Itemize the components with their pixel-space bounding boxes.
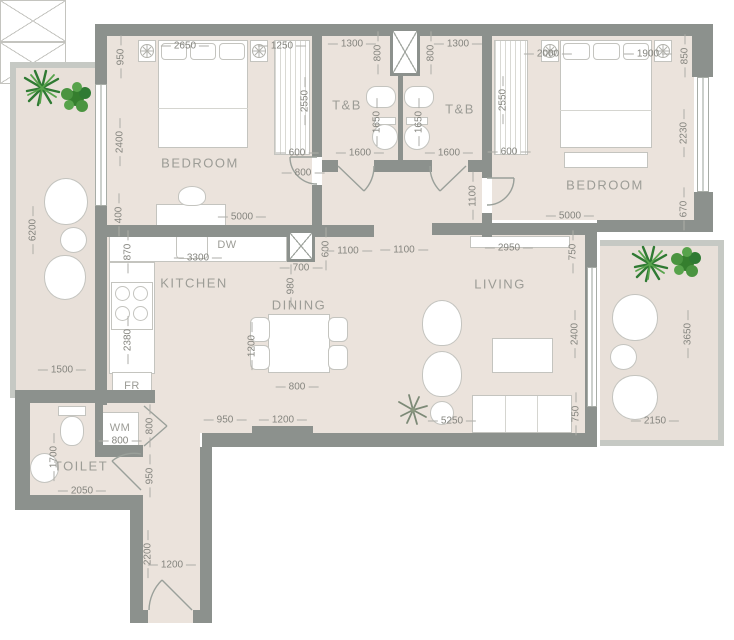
wall-south-notch — [252, 426, 313, 447]
balcony-chair — [612, 294, 658, 341]
dim-label: 1300 — [328, 39, 376, 50]
dim-label: 1700 — [49, 433, 60, 481]
dim-label: 3650 — [683, 310, 694, 358]
pillow — [593, 43, 620, 60]
dim-label: 600 — [488, 147, 531, 158]
railing-left-balcony-west — [10, 62, 16, 398]
burner — [115, 286, 130, 301]
window-bedroom-left — [95, 84, 107, 206]
room-label-kitchen: KITCHEN — [160, 276, 228, 291]
dim-label: 6200 — [28, 206, 39, 254]
dim-label: 670 — [679, 188, 690, 231]
dim-label: 1650 — [414, 98, 425, 146]
dim-label: 1200 — [247, 322, 258, 370]
dim-label: 3300 — [174, 253, 222, 264]
dim-label: 5250 — [428, 416, 476, 427]
dim-label: 1600 — [336, 148, 384, 159]
bed-bench — [564, 152, 648, 168]
armchair — [422, 351, 462, 397]
shaft-kitchen — [287, 230, 315, 262]
wall-tb-south-a — [322, 160, 338, 172]
dim-label: 800 — [276, 382, 319, 393]
dining-chair — [328, 317, 348, 342]
coffee-table — [492, 338, 553, 373]
nightstand — [138, 40, 156, 62]
dim-label: 2650 — [161, 41, 209, 52]
railing-right-balcony-north — [600, 240, 724, 246]
dim-label: 800 — [373, 32, 384, 75]
balcony-chair — [44, 178, 88, 225]
dining-chair — [328, 345, 348, 370]
balcony-table — [60, 227, 87, 253]
railing-right-balcony-east — [718, 240, 724, 446]
wall-tb-south-b — [374, 160, 432, 172]
balcony-chair — [44, 255, 86, 300]
dim-label: 950 — [116, 36, 127, 79]
room-label-tb-right: T&B — [445, 102, 475, 117]
railing-right-balcony-south — [600, 440, 724, 446]
shower-left — [0, 0, 66, 42]
burner — [133, 286, 148, 301]
dim-label: 2400 — [570, 310, 581, 358]
dim-label: 2400 — [115, 118, 126, 166]
dim-label: 1650 — [372, 98, 383, 146]
dim-label: 2200 — [143, 530, 154, 578]
room-label-dining: DINING — [272, 298, 327, 313]
dining-table — [268, 314, 330, 373]
wall-top-right-block — [692, 30, 713, 77]
dim-label: 1100 — [468, 172, 479, 220]
dim-label: 600 — [276, 148, 319, 159]
wall-bedroom-right-south — [597, 220, 713, 232]
dim-label: 2380 — [123, 316, 134, 364]
room-label-living: LIVING — [474, 277, 526, 292]
toilet-bowl — [60, 416, 84, 446]
dim-label: 2950 — [485, 243, 533, 254]
dim-label: 2230 — [679, 109, 690, 157]
dim-label: 800 — [145, 405, 156, 448]
balcony-chair — [612, 375, 658, 420]
dim-label: 1200 — [259, 415, 307, 426]
dim-label: 750 — [571, 393, 582, 436]
appliance-label-wm: WM — [110, 422, 131, 434]
wall-corridor-east — [200, 447, 212, 623]
floor-plan: BEDROOM BEDROOM T&B T&B KITCHEN DINING L… — [0, 0, 734, 640]
blanket-line — [158, 108, 248, 109]
room-label-bedroom-right: BEDROOM — [566, 178, 644, 193]
wall-toilet-south — [15, 495, 143, 510]
dim-label: 2000 — [524, 49, 572, 60]
wall-left-upper — [95, 24, 107, 84]
desk — [156, 204, 226, 226]
sofa — [472, 395, 572, 433]
dim-label: 850 — [680, 35, 691, 78]
dim-label: 5000 — [218, 212, 266, 223]
room-label-tb-left: T&B — [332, 98, 362, 113]
armchair — [422, 300, 462, 346]
dim-label: 980 — [286, 265, 297, 308]
dim-label: 1200 — [148, 560, 196, 571]
dim-label: 2550 — [300, 77, 311, 125]
wall-toilet-west — [15, 390, 30, 510]
dim-label: 1250 — [258, 41, 306, 52]
dim-label: 2150 — [631, 416, 679, 427]
dim-label: 750 — [568, 231, 579, 274]
dim-label: 1100 — [324, 246, 372, 257]
pillow — [219, 43, 245, 60]
wall-corridor-west — [130, 495, 143, 623]
room-label-bedroom-left: BEDROOM — [161, 156, 239, 171]
railing-left-balcony-north — [10, 62, 98, 68]
dim-label: 5000 — [546, 211, 594, 222]
room-label-toilet: TOILET — [54, 459, 108, 474]
dim-label: 800 — [282, 168, 325, 179]
burner — [133, 306, 148, 321]
window-bedroom-right — [697, 77, 709, 192]
wall-entry-stub-right — [193, 610, 212, 623]
dim-label: 1500 — [38, 365, 86, 376]
dim-label: 950 — [204, 415, 247, 426]
balcony-table — [610, 344, 637, 370]
dim-label: 1100 — [380, 245, 428, 256]
shaft-top — [390, 28, 420, 76]
wall-closet-left-east — [312, 36, 322, 157]
wall-wm-south — [95, 445, 143, 457]
sliding-door-balcony-right — [587, 267, 597, 407]
toilet-tank — [58, 406, 86, 416]
appliance-label-dw: DW — [217, 239, 236, 251]
wall-tb-divider — [398, 76, 403, 164]
dim-label: 870 — [123, 231, 134, 274]
dim-label: 2550 — [498, 76, 509, 124]
dim-label: 800 — [99, 436, 142, 447]
appliance-label-fr: FR — [124, 380, 140, 392]
desk-chair — [178, 186, 206, 206]
blanket-line — [560, 110, 652, 111]
dim-label: 1300 — [434, 39, 482, 50]
dim-label: 950 — [145, 455, 156, 498]
dim-label: 1900 — [624, 49, 672, 60]
dim-label: 1600 — [425, 148, 473, 159]
dim-label: 2050 — [58, 486, 106, 497]
